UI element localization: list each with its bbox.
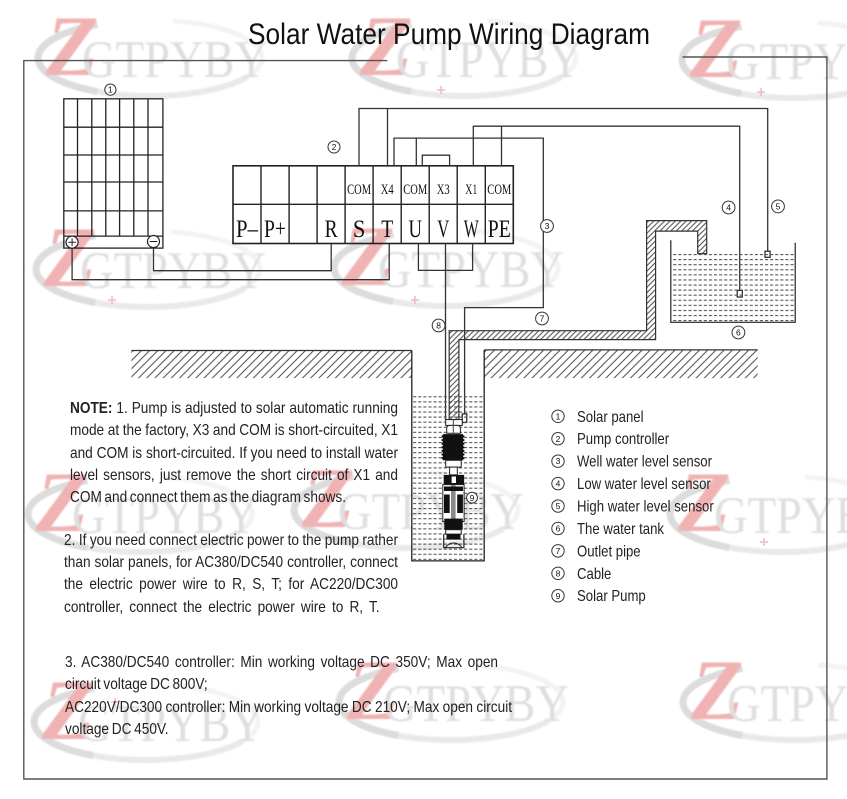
svg-text:3: 3 bbox=[556, 456, 561, 466]
svg-text:4: 4 bbox=[726, 203, 731, 213]
svg-text:COM: COM bbox=[347, 182, 371, 198]
svg-text:X3: X3 bbox=[437, 182, 450, 198]
svg-text:P–: P– bbox=[236, 216, 258, 243]
svg-text:X1: X1 bbox=[465, 182, 477, 198]
svg-text:1: 1 bbox=[556, 411, 561, 421]
svg-text:High water level sensor: High water level sensor bbox=[577, 499, 714, 516]
svg-text:7: 7 bbox=[556, 546, 561, 556]
svg-text:7: 7 bbox=[540, 314, 545, 324]
svg-text:6: 6 bbox=[736, 328, 741, 338]
svg-text:T: T bbox=[381, 216, 393, 243]
svg-text:U: U bbox=[408, 216, 422, 243]
svg-text:COM: COM bbox=[403, 182, 427, 198]
svg-text:V: V bbox=[437, 216, 449, 243]
svg-text:W: W bbox=[464, 216, 479, 243]
svg-text:8: 8 bbox=[436, 321, 441, 331]
svg-text:GTPYBY: GTPYBY bbox=[727, 675, 847, 733]
svg-text:R: R bbox=[325, 216, 338, 243]
svg-text:3: 3 bbox=[545, 221, 550, 231]
svg-text:Cable: Cable bbox=[577, 566, 611, 583]
svg-text:5: 5 bbox=[776, 201, 781, 211]
svg-text:Solar panel: Solar panel bbox=[577, 409, 644, 426]
svg-text:Solar Pump: Solar Pump bbox=[577, 588, 646, 605]
svg-text:PE: PE bbox=[488, 216, 511, 243]
svg-text:Low water level sensor: Low water level sensor bbox=[577, 476, 711, 493]
svg-text:1: 1 bbox=[108, 85, 113, 95]
svg-text:Pump controller: Pump controller bbox=[577, 431, 669, 448]
svg-text:9: 9 bbox=[556, 591, 561, 601]
svg-text:COM: COM bbox=[487, 182, 511, 198]
svg-text:9: 9 bbox=[470, 493, 475, 503]
svg-text:2: 2 bbox=[556, 434, 561, 444]
svg-text:X4: X4 bbox=[381, 182, 395, 198]
svg-text:Outlet pipe: Outlet pipe bbox=[577, 544, 641, 561]
svg-text:8: 8 bbox=[556, 568, 561, 578]
svg-text:The water tank: The water tank bbox=[577, 521, 665, 538]
svg-text:5: 5 bbox=[556, 501, 561, 511]
svg-text:2: 2 bbox=[332, 142, 337, 152]
svg-text:Well water level sensor: Well water level sensor bbox=[577, 454, 712, 471]
svg-text:GTPYBY: GTPYBY bbox=[726, 33, 847, 91]
svg-text:6: 6 bbox=[556, 524, 561, 534]
svg-text:4: 4 bbox=[556, 479, 561, 489]
svg-text:S: S bbox=[353, 216, 366, 243]
svg-text:P+: P+ bbox=[264, 216, 286, 243]
